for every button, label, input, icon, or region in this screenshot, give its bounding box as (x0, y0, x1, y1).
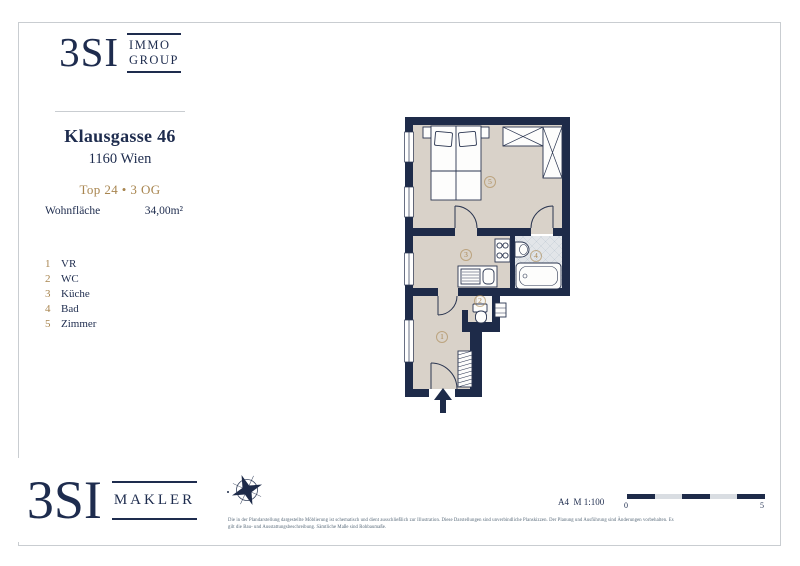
scale-bar-segment (655, 494, 682, 499)
scale-bar (627, 494, 765, 499)
window-icon (405, 187, 414, 217)
window-icon (405, 132, 414, 162)
scale-bar-segment (682, 494, 710, 499)
room-label-2: 2 (474, 295, 486, 307)
wall-kitchen-bath (510, 236, 515, 288)
wall-room5-bottom (477, 228, 531, 236)
floor-plan-page: 3SI IMMO GROUP Klausgasse 46 1160 Wien T… (0, 0, 800, 566)
room-label-5: 5 (484, 176, 496, 188)
double-bed (423, 126, 489, 200)
window-icon (405, 320, 414, 362)
wall-right (562, 117, 570, 296)
room-label-4: 4 (530, 250, 542, 262)
room-label-1: 1 (436, 331, 448, 343)
wall-hall-bottom (405, 389, 429, 397)
kitchen-sink-unit (458, 266, 497, 287)
wall-kitchen-bottom (405, 288, 438, 296)
wardrobe (503, 127, 543, 146)
disclaimer-line1: Die in der Plandarstellung dargestellte … (228, 518, 773, 525)
room-label-3: 3 (460, 249, 472, 261)
washbasin-icon (515, 242, 529, 257)
format-scale-text: A4 M 1:100 (558, 497, 604, 507)
wall-wc-bottom (462, 322, 500, 332)
wall-hall-bottom (455, 389, 482, 397)
brand-mark-bottom: 3SI (27, 473, 102, 527)
scale-end-label: 5 (760, 501, 764, 510)
disclaimer: Die in der Plandarstellung dargestellte … (228, 518, 773, 531)
bathtub-icon (516, 263, 561, 289)
window-icon (405, 253, 414, 285)
scale-start-label: 0 (624, 501, 628, 510)
scale-bar-segment (710, 494, 737, 499)
shaft-box (495, 303, 506, 317)
wall-room5-bottom (413, 228, 455, 236)
brand-logo-bottom: 3SI MAKLER (12, 458, 212, 542)
wardrobe-tall (543, 127, 562, 178)
compass-icon (226, 469, 267, 510)
hall-shelf (458, 351, 472, 387)
wall-room5-bottom (553, 228, 562, 236)
brand-suffix-bottom: MAKLER (112, 481, 197, 520)
wall-top (405, 117, 570, 125)
scale-bar-segment (737, 494, 765, 499)
disclaimer-line2: gilt die Bau- und Ausstattungsbeschreibu… (228, 525, 773, 532)
stove-icon (495, 239, 510, 262)
scale-bar-segment (627, 494, 655, 499)
